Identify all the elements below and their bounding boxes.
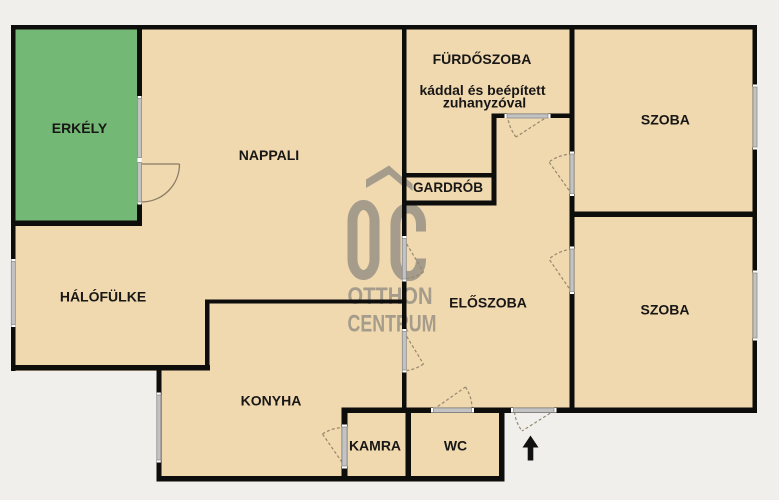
svg-text:SZOBA: SZOBA <box>641 112 690 128</box>
svg-text:zuhanyzóval: zuhanyzóval <box>443 95 526 111</box>
svg-text:GARDRÓB: GARDRÓB <box>413 178 483 195</box>
svg-text:KAMRA: KAMRA <box>349 438 401 454</box>
svg-text:FÜRDŐSZOBA: FÜRDŐSZOBA <box>433 50 532 67</box>
svg-text:ELŐSZOBA: ELŐSZOBA <box>449 294 527 311</box>
svg-text:NAPPALI: NAPPALI <box>239 147 299 163</box>
svg-text:WC: WC <box>444 438 467 454</box>
svg-text:CENTRUM: CENTRUM <box>348 311 437 338</box>
svg-text:KONYHA: KONYHA <box>241 393 302 409</box>
svg-text:HÁLÓFÜLKE: HÁLÓFÜLKE <box>60 288 146 305</box>
svg-text:ERKÉLY: ERKÉLY <box>52 120 108 136</box>
svg-text:OTTHON: OTTHON <box>348 283 433 310</box>
svg-text:SZOBA: SZOBA <box>641 302 690 318</box>
